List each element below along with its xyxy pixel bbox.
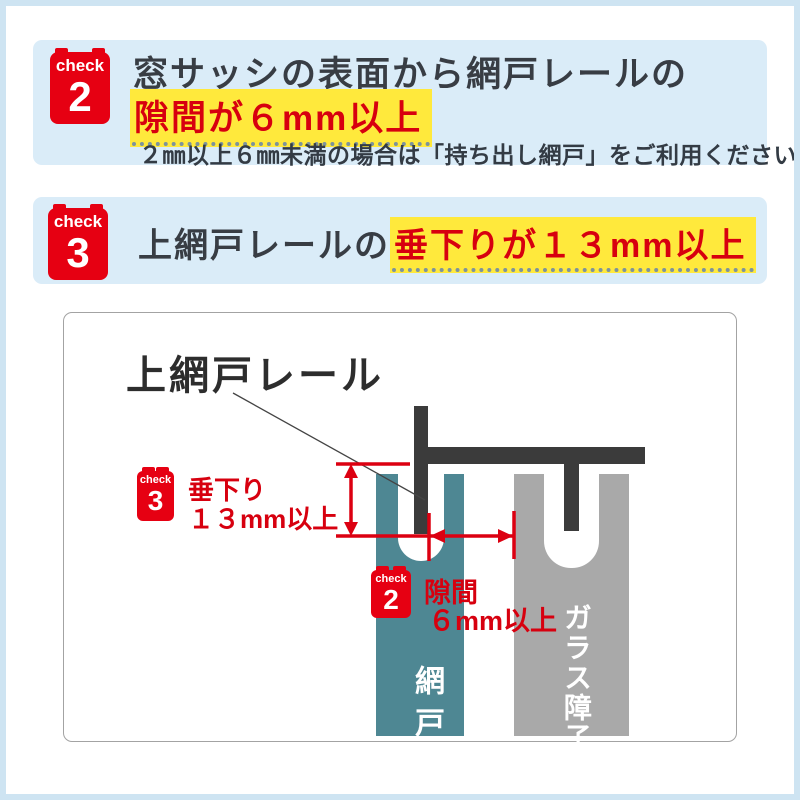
check3-title-prefix: 上網戸レールの — [138, 227, 390, 265]
check2-panel: check 2 窓サッシの表面から網戸レールの 隙間が６mm以上 ２㎜以上６㎜未… — [33, 40, 767, 165]
check3-badge-icon: check 3 — [48, 208, 108, 280]
screen-door-label: 網戸 — [404, 665, 448, 749]
badge-tab-icon — [142, 467, 155, 475]
dimension-marks — [336, 464, 514, 561]
badge-number: 2 — [50, 76, 110, 118]
upper-rail-label: 上網戸レール — [126, 343, 384, 401]
gap-check2-badge-icon: check 2 — [371, 570, 411, 618]
badge-tab-icon — [156, 467, 169, 475]
check2-badge-icon: check 2 — [50, 52, 110, 124]
check3-highlight: 垂下りが１３mm以上 — [390, 217, 756, 273]
dotted-underline — [392, 268, 754, 272]
badge-tab-icon — [53, 204, 66, 212]
badge-tab-icon — [90, 204, 103, 212]
glass-shoji-label: ガラス障子 — [556, 603, 596, 753]
arrow-up-icon — [344, 464, 358, 478]
badge-number: 3 — [137, 487, 174, 515]
badge-check-label: check — [48, 213, 108, 230]
check3-highlight-text: 垂下りが１３mm以上 — [394, 227, 746, 265]
arrow-right-icon — [498, 529, 513, 543]
check3-panel: check 3 上網戸レールの垂下りが１３mm以上 — [33, 197, 767, 284]
check3-title-line: 上網戸レールの垂下りが１３mm以上 — [138, 217, 756, 273]
badge-tab-icon — [376, 566, 389, 574]
check2-note: ２㎜以上６㎜未満の場合は「持ち出し網戸」をご利用ください — [139, 136, 797, 170]
rail-cross-section-diagram: 上網戸レール check 3 垂下り １３mm以上 check 2 隙間 ６mm… — [63, 312, 737, 742]
page: check 2 窓サッシの表面から網戸レールの 隙間が６mm以上 ２㎜以上６㎜未… — [0, 0, 800, 800]
sag-value: １３mm以上 — [188, 499, 338, 536]
arrow-down-icon — [344, 522, 358, 536]
badge-number: 3 — [48, 232, 108, 274]
arrow-left-icon — [430, 529, 445, 543]
gap-value: ６mm以上 — [428, 599, 557, 638]
badge-number: 2 — [371, 586, 411, 614]
badge-tab-icon — [55, 48, 68, 56]
badge-tab-icon — [393, 566, 406, 574]
badge-tab-icon — [92, 48, 105, 56]
badge-check-label: check — [50, 57, 110, 74]
check2-highlight-text: 隙間が６mm以上 — [134, 99, 422, 138]
sag-check3-badge-icon: check 3 — [137, 471, 174, 521]
